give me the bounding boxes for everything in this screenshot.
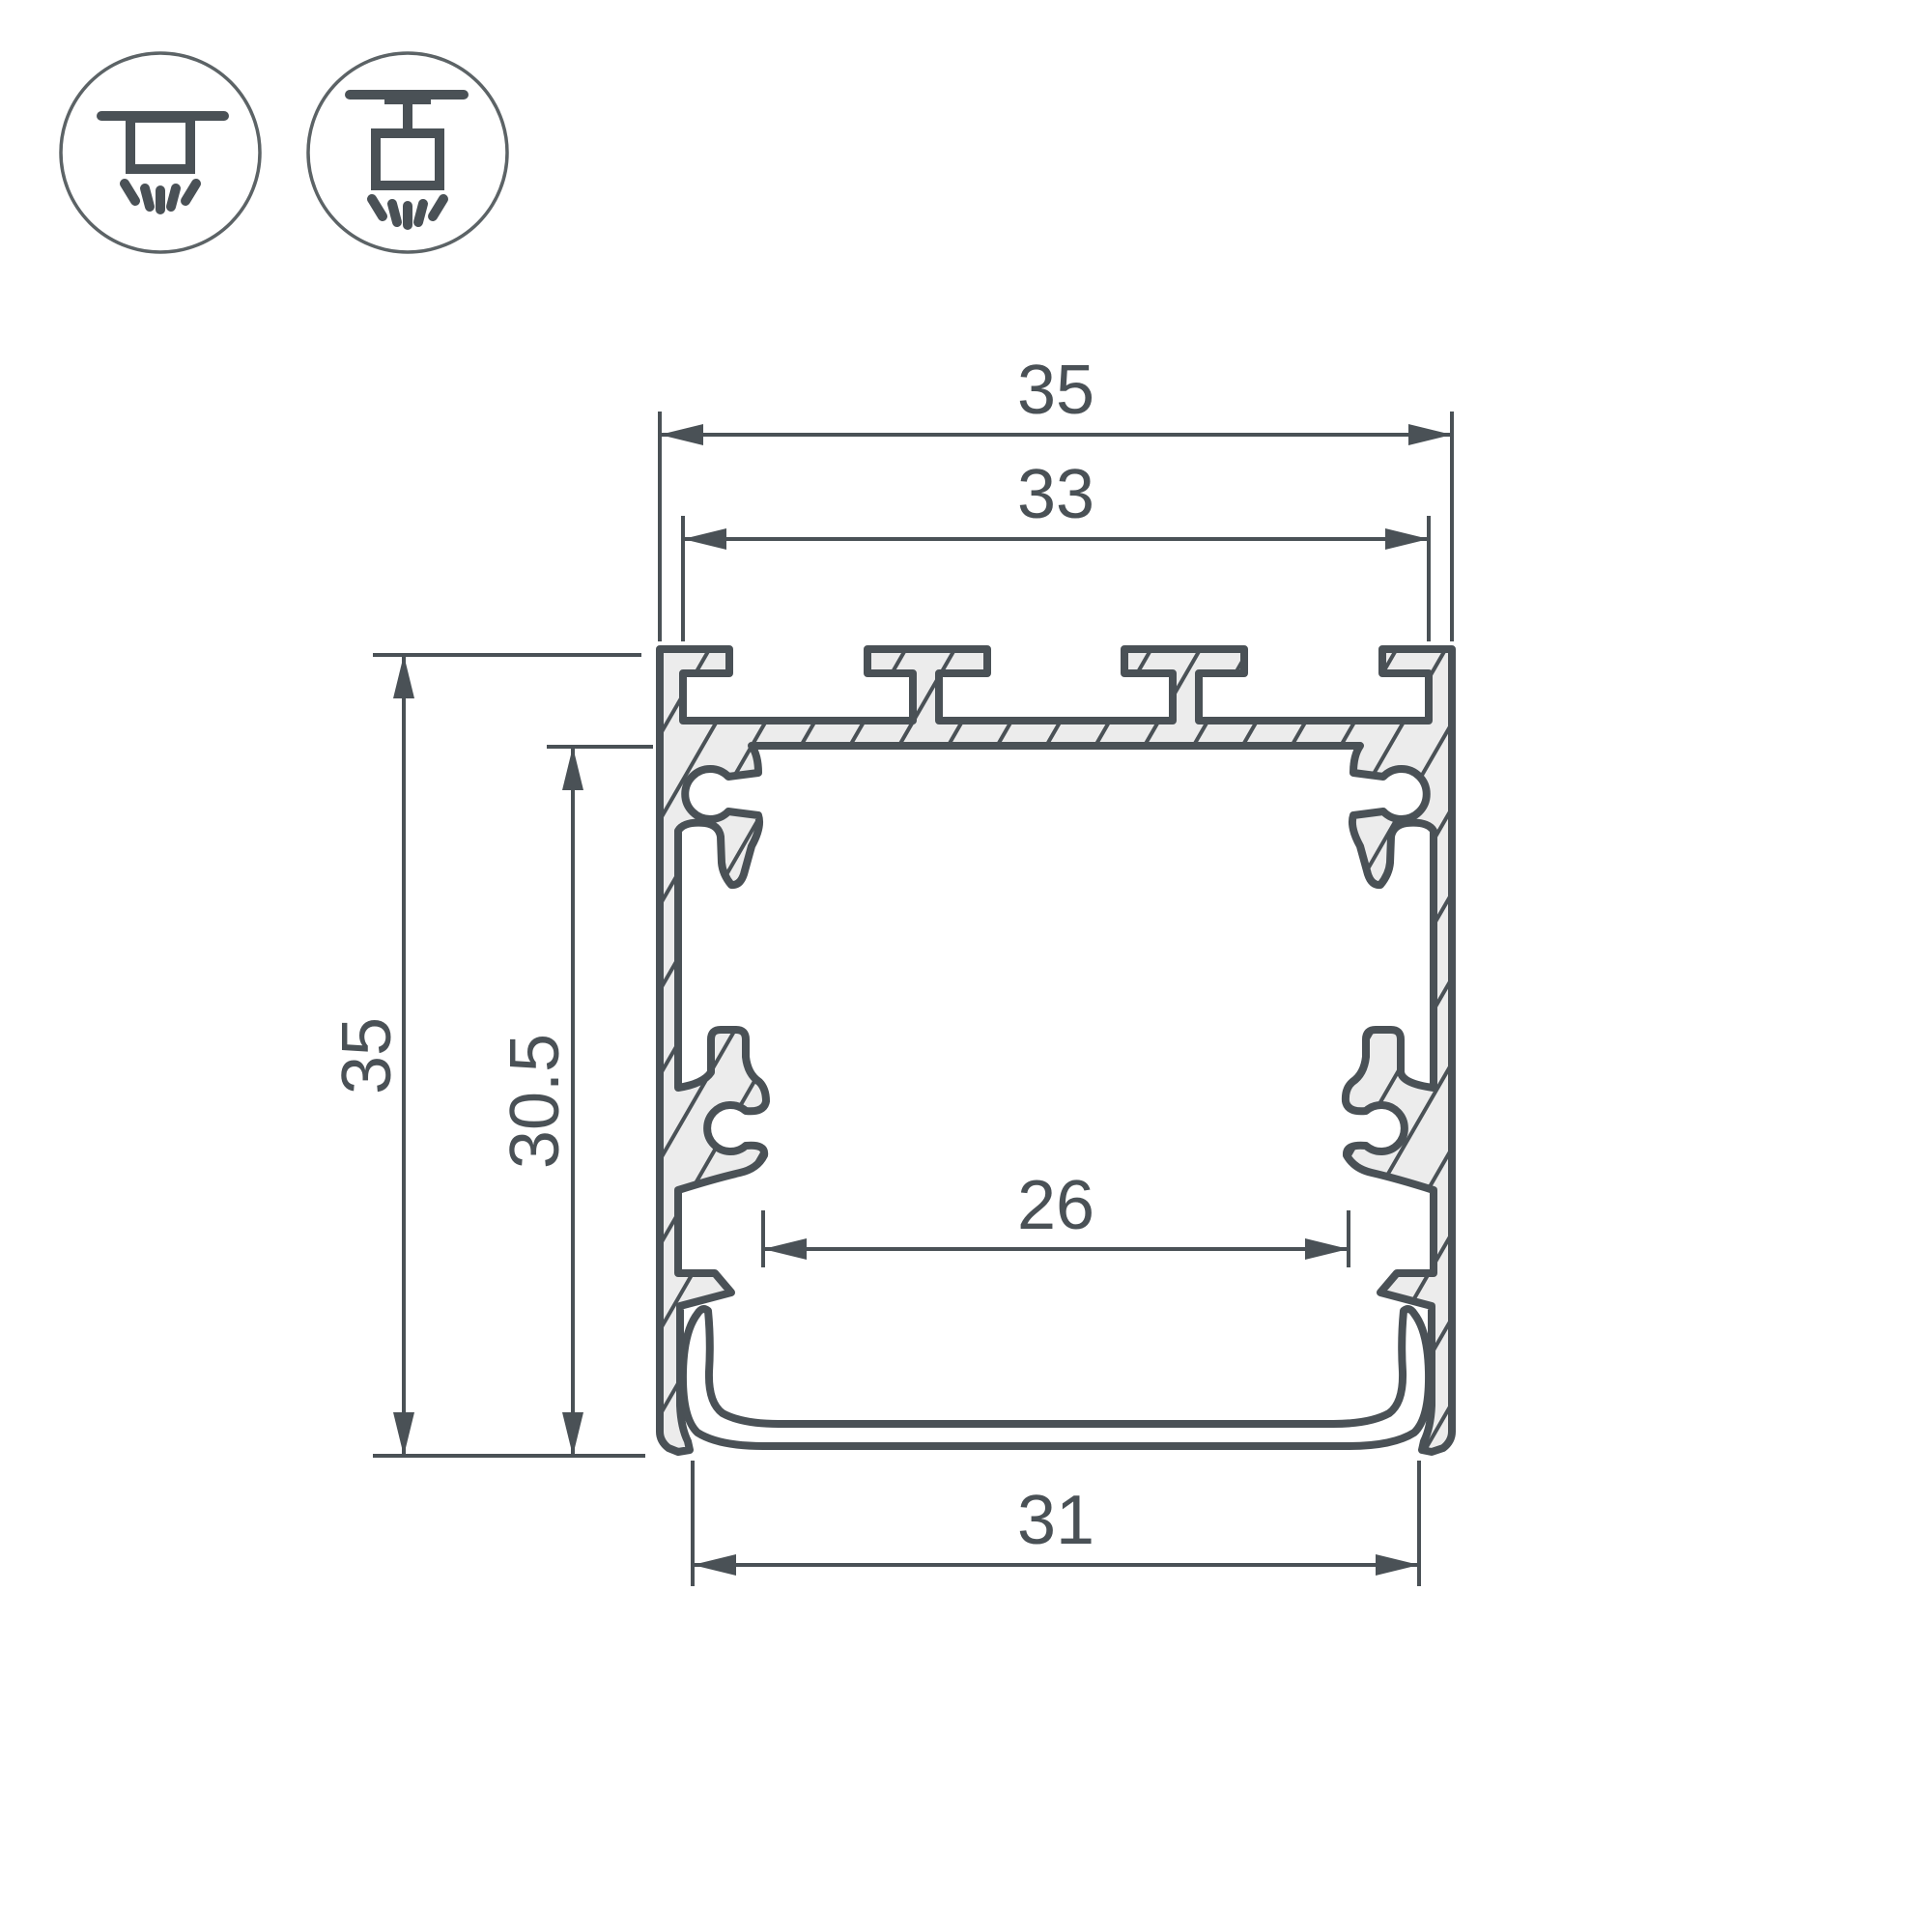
dimension-label: 33 <box>1017 456 1094 533</box>
dimension-inner-height: 30.5 <box>497 747 653 1456</box>
pendant-mount-luminaire-icon <box>308 53 507 252</box>
profile-body <box>660 649 1452 1452</box>
dimension-bottom-width: 31 <box>693 1461 1419 1586</box>
dimension-outer-height: 35 <box>328 655 645 1456</box>
luminaire-body <box>376 133 440 185</box>
surface-mount-luminaire-icon <box>61 53 260 252</box>
dimension-label: 31 <box>1017 1482 1094 1559</box>
dimension-label: 30.5 <box>497 1034 574 1169</box>
dimension-inner-cavity-width: 26 <box>763 1167 1349 1267</box>
drawing-page: 35 33 35 30.5 26 <box>0 0 1932 1932</box>
luminaire-body <box>130 118 190 169</box>
diffuser-cover <box>683 1309 1429 1446</box>
technical-drawing: 35 33 35 30.5 26 <box>0 0 1932 1932</box>
dimension-label: 35 <box>328 1017 406 1094</box>
dimension-label: 26 <box>1017 1167 1094 1244</box>
dimension-top-slot-width: 33 <box>683 456 1429 641</box>
dimension-label: 35 <box>1017 352 1094 429</box>
